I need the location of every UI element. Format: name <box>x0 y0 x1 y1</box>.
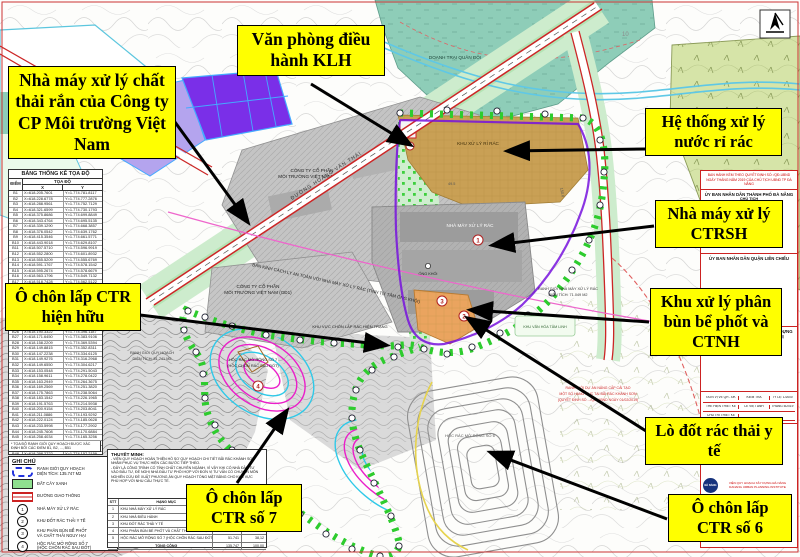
survey-point-marker <box>444 351 450 357</box>
cell7-label-1: HỘC RÁC MỞ RỘNG SỐ 7 <box>229 357 277 362</box>
coordinate-table-note: * TỌA ĐỘ RANH GIỚI QUY HOẠCH ĐƯỢC XÁC ĐỊ… <box>8 441 101 452</box>
legend-label: ĐƯỜNG GIAO THÔNG <box>37 494 80 499</box>
survey-point-marker <box>181 327 187 333</box>
legend-item: 3KHU PHÂN BÙN BỂ PHỐT VÀ CHẤT THẢI NGUY … <box>12 529 114 539</box>
survey-point-marker <box>369 367 375 373</box>
survey-point-marker <box>202 314 208 320</box>
svg-text:(QUYẾT ĐỊNH SỐ .../QĐ-UBND NGÀ: (QUYẾT ĐỊNH SỐ .../QĐ-UBND NGÀY 01/02/20… <box>558 397 638 402</box>
callout-hien-huu: Ô chôn lấp CTR hiện hữu <box>5 283 141 331</box>
survey-point-marker <box>597 137 603 143</box>
contour-elevation-label: 10 <box>622 32 629 38</box>
note-line: PHÙ HỢP VỚI NHU CẦU THỰC TẾ. <box>111 479 263 484</box>
survey-point-marker <box>323 531 329 537</box>
upgrade-project-label: RANH GIỚI DỰ ÁN NÂNG CẤP CẢI TẠO MỘT SỐ … <box>558 385 638 402</box>
existing-dump-label: KHU VỰC CHÔN LẤP RÁC HIỆN TRẠNG <box>312 324 387 329</box>
legend-label: KHU PHÂN BÙN BỂ PHỐT VÀ CHẤT THẢI NGUY H… <box>37 529 87 538</box>
facility-marker-3: 3 <box>437 296 447 306</box>
facility-marker-2: 2 <box>459 311 469 321</box>
legend-swatch <box>12 479 33 489</box>
issue-line-1: BAN HÀNH KÈM THEO QUYẾT ĐỊNH SỐ: /QĐ-UBN… <box>703 173 795 178</box>
company-gd1-label-1: CÔNG TY CỔ PHẦN <box>237 283 280 289</box>
legend-items: RANH GIỚI QUY HOẠCH DIỆN TÍCH: 135.747 M… <box>12 467 114 551</box>
survey-point-marker <box>497 330 503 336</box>
callout-he-thong: Hệ thống xử lý nước rỉ rác <box>645 108 782 156</box>
planning-map-page: DOANH TRẠI QUÂN ĐỘI 10 <box>0 0 800 557</box>
legend-item: RANH GIỚI QUY HOẠCH DIỆN TÍCH: 135.747 M… <box>12 467 114 477</box>
legend-item: ĐƯỜNG GIAO THÔNG <box>12 492 114 502</box>
signature-row: ĐƠN VỊ VẼ QH - ĐKKIỂM TRATỶ LỆ: 1/2000 <box>703 394 795 403</box>
leachate-zone-label: KHU XỬ LÝ RỈ RÁC <box>457 140 499 146</box>
legend-swatch: 2 <box>12 517 33 527</box>
legend-swatch: 4 <box>12 541 33 551</box>
survey-point-marker <box>185 308 191 314</box>
institute-logo: ĐÀ NẴNG <box>703 478 718 493</box>
survey-point-marker <box>377 553 383 557</box>
survey-point-marker <box>349 415 355 421</box>
planning-boundary-label-1: RANH GIỚI QUY HOẠCH <box>130 350 174 355</box>
legend-item: ĐẤT CÂY XANH <box>12 479 114 489</box>
survey-point-marker <box>357 447 363 453</box>
area-table-row: TỔNG CỘNG135.747100,00 <box>108 543 266 550</box>
legend-label: KHU ĐỐT RÁC THẢI Y TẾ <box>37 519 86 524</box>
survey-point-marker <box>586 237 592 243</box>
issue-statement: BAN HÀNH KÈM THEO QUYẾT ĐỊNH SỐ: /QĐ-UBN… <box>701 171 797 190</box>
legend-item: 2KHU ĐỐT RÁC THẢI Y TẾ <box>12 517 114 527</box>
survey-point-marker <box>371 480 377 486</box>
area-table-row: 5HỘC RÁC MỞ RỘNG SỐ 7 (HỘC CHÔN RÁC SAU … <box>108 535 266 542</box>
company-gd1-label-2: MÔI TRƯỜNG VIỆT NAM (GĐ1) <box>224 288 292 295</box>
institute-text: VIỆN QUY HOẠCH XÂY DỰNG ĐÀ NẴNG DANANG U… <box>720 482 795 490</box>
legend-swatch <box>12 492 33 502</box>
callout-phan-bun: Khu xử lý phân bùn bể phốt và CTNH <box>650 288 782 356</box>
survey-point-marker <box>391 354 397 360</box>
survey-point-marker <box>597 202 603 208</box>
col-point: ĐIỂM <box>9 179 23 190</box>
facility-marker-4: 4 <box>253 381 263 391</box>
survey-point-marker <box>297 337 303 343</box>
legend-swatch: 1 <box>12 504 33 514</box>
legend-item: 1NHÀ MÁY XỬ LÝ RÁC <box>12 504 114 514</box>
note-line: VÀO ĐẦU TƯ, ĐỀ NGHỊ NHÀ ĐẦU TƯ PHỐI HỢP … <box>111 470 263 475</box>
office-marker <box>406 142 414 150</box>
callout-lo-dot: Lò đốt rác thải y tế <box>645 417 783 465</box>
survey-point-marker <box>263 332 269 338</box>
survey-point-marker <box>444 107 450 113</box>
callout-so7: Ô chôn lấp CTR số 7 <box>186 484 302 532</box>
survey-point-marker <box>569 267 575 273</box>
survey-point-marker <box>421 346 427 352</box>
legend: GHI CHÚ RANH GIỚI QUY HOẠCH DIỆN TÍCH: 1… <box>8 456 118 551</box>
legend-swatch <box>12 467 33 477</box>
cell6-label: HỘC RÁC MỞ RỘNG SỐ 6 <box>445 433 495 438</box>
survey-point-marker <box>388 513 394 519</box>
survey-point-marker <box>349 546 355 552</box>
institute-name-en: DANANG URBAN PLANNING INSTITUTE <box>720 486 795 490</box>
legend-label: RANH GIỚI QUY HOẠCH DIỆN TÍCH: 135.747 M… <box>37 467 85 476</box>
legend-label: ĐẤT CÂY XANH <box>37 482 67 487</box>
dimension-49: 49.5 <box>448 182 455 186</box>
svg-text:RANH GIỚI DỰ ÁN NÂNG CẤP CẢI T: RANH GIỚI DỰ ÁN NÂNG CẤP CẢI TẠO <box>566 385 631 390</box>
survey-point-marker <box>200 371 206 377</box>
notes-lines: - VIỆN QUY HOẠCH HOÀN THIỆN HỒ SƠ QUY HO… <box>111 457 263 484</box>
survey-point-marker <box>331 340 337 346</box>
survey-point-marker <box>365 341 371 347</box>
svg-text:MỘT SỐ HẠNG MỤC TẠI BÃI RÁC KH: MỘT SỐ HẠNG MỤC TẠI BÃI RÁC KHÁNH SƠN <box>559 391 637 396</box>
survey-point-marker <box>202 395 208 401</box>
callout-nha-may-vn: Nhà máy xử lý chất thải rắn của Công ty … <box>8 66 176 159</box>
callout-ctrsh: Nhà máy xử lý CTRSH <box>655 200 783 248</box>
survey-point-marker <box>494 108 500 114</box>
chimney-symbol <box>425 263 430 268</box>
legend-label: NHÀ MÁY XỬ LÝ RÁC <box>37 507 79 512</box>
survey-point-marker <box>580 115 586 121</box>
coord-row: B48X=618.298.2722Y=1.774.157.2159 <box>9 452 102 455</box>
survey-point-marker <box>353 387 359 393</box>
survey-point-marker <box>193 349 199 355</box>
survey-point-marker <box>601 169 607 175</box>
waste-plant-label: NHÀ MÁY XỬ LÝ RÁC <box>447 222 495 228</box>
legend-item: 4HỘC RÁC MỞ RỘNG SỐ 7 (HỘC CHÔN RÁC SAU … <box>12 541 114 551</box>
callout-van-phong: Văn phòng điều hành KLH <box>237 25 385 76</box>
signature-row: THỂ HIỆN THIẾT KẾLÊ VIỆT ANHTHÁNG 5/2019 <box>703 403 795 412</box>
plant-boundary-label-1: RANH GIỚI NHÀ MÁY XỬ LÝ RÁC <box>538 286 598 291</box>
legend-title: GHI CHÚ <box>12 459 114 465</box>
survey-point-marker <box>469 344 475 350</box>
survey-point-marker <box>229 323 235 329</box>
military-zone-label: DOANH TRẠI QUÂN ĐỘI <box>429 54 481 60</box>
survey-point-marker <box>396 543 402 549</box>
legend-swatch: 3 <box>12 529 33 539</box>
cell7-label-2: (HỘC CHÔN RÁC SAU ĐỐT) <box>227 363 279 368</box>
survey-point-marker <box>395 344 401 350</box>
survey-point-marker <box>542 111 548 117</box>
legend-label: HỘC RÁC MỞ RỘNG SỐ 7 (HỘC CHÔN RÁC SAU Đ… <box>37 542 91 551</box>
ubnd-district-label: ỦY BAN NHÂN DÂN QUẬN LIÊN CHIỂU <box>703 256 795 261</box>
planning-boundary-label-2: DIỆN TÍCH: 51.741 M2 <box>133 356 172 361</box>
culture-zone-label: KHU VĂN HÓA TÂM LINH <box>523 324 567 329</box>
issue-line-2: NGÀY THÁNG NĂM 2019 CỦA CHỦ TỊCH UBND TP… <box>703 178 795 187</box>
survey-point-marker <box>397 110 403 116</box>
plant-boundary-label-2: DIỆN TÍCH: 71.049 M2 <box>549 292 588 297</box>
facility-marker-1: 1 <box>473 235 483 245</box>
north-arrow-icon <box>760 10 790 38</box>
callout-so6: Ô chôn lấp CTR số 6 <box>668 494 792 542</box>
survey-point-marker <box>212 422 218 428</box>
coordinate-table-title: BẢNG THỐNG KÊ TỌA ĐỘ <box>9 170 102 179</box>
